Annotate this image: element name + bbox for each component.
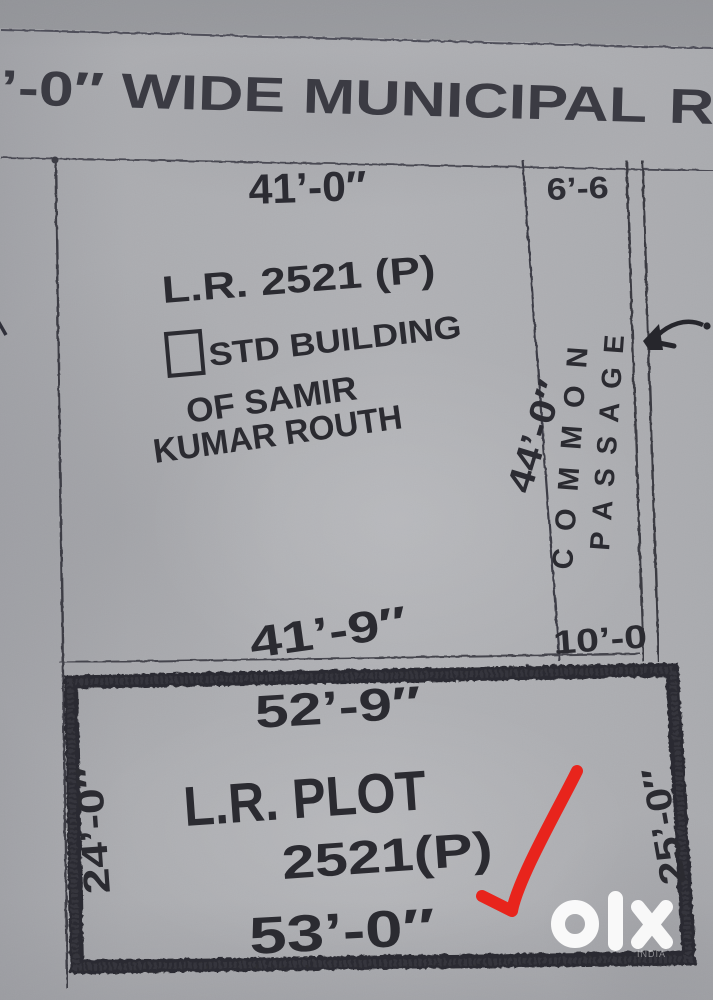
svg-text:INDIA: INDIA <box>637 949 666 959</box>
svg-text:53’-0″: 53’-0″ <box>248 898 437 966</box>
svg-text:52’-9″: 52’-9″ <box>253 676 422 738</box>
svg-text:41’-0″: 41’-0″ <box>248 162 368 213</box>
svg-text:6’-6: 6’-6 <box>546 170 609 207</box>
